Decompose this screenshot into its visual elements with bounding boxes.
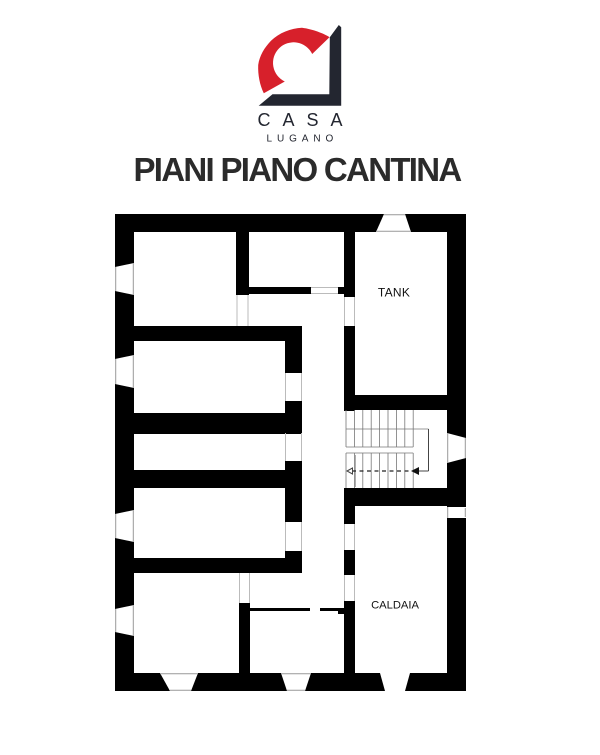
svg-text:TANK: TANK [378,286,410,300]
svg-text:PIANI PIANO CANTINA: PIANI PIANO CANTINA [133,151,461,188]
svg-text:CASA: CASA [258,110,355,130]
svg-text:LUGANO: LUGANO [267,134,339,145]
svg-text:CALDAIA: CALDAIA [371,600,419,612]
